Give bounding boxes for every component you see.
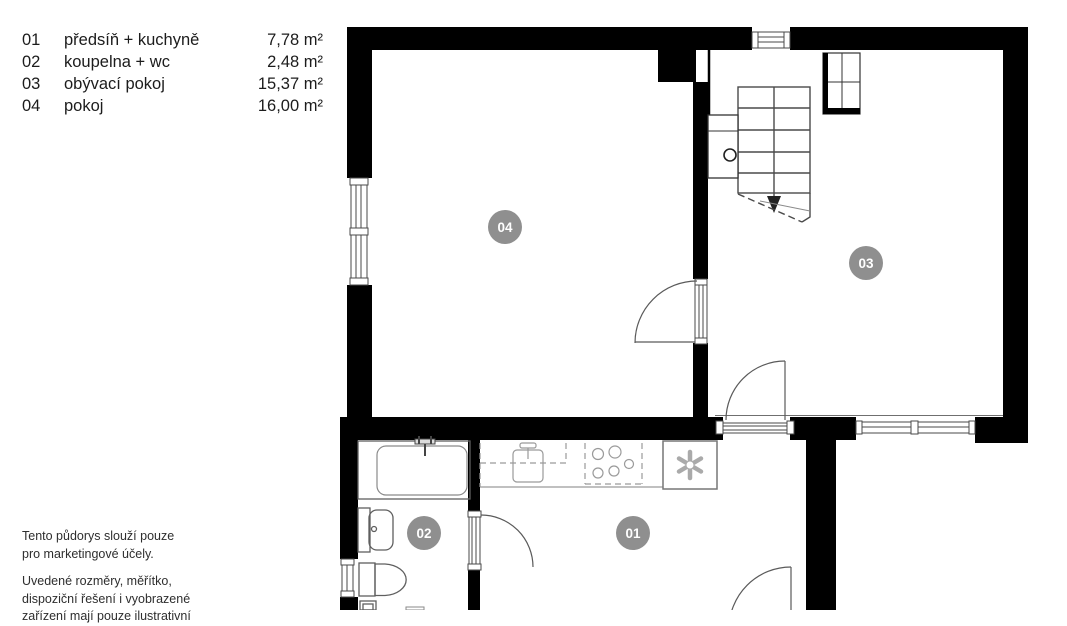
- room-badge-03: 03: [849, 246, 883, 280]
- door-bathroom: [468, 511, 533, 570]
- badge-number: 03: [858, 256, 874, 271]
- disclaimer-line: zařízení mají pouze ilustrativní: [22, 609, 191, 623]
- badge-number: 01: [625, 526, 641, 541]
- room-badge-02: 02: [407, 516, 441, 550]
- door-swing-arc: [729, 567, 791, 610]
- water-heater: [708, 115, 738, 178]
- washbasin: [358, 508, 393, 552]
- window-room04-left: [350, 178, 368, 285]
- door-swing-arc: [481, 515, 533, 567]
- door-swing-arc: [635, 281, 697, 343]
- door-room03: [716, 361, 794, 434]
- badge-number: 02: [416, 526, 431, 541]
- window-top: [752, 32, 790, 48]
- bathtub: [358, 436, 470, 499]
- toilet: [359, 563, 406, 596]
- stove: [593, 446, 634, 478]
- door-swing-arc: [726, 361, 785, 420]
- door-room04: [635, 279, 707, 344]
- kitchen-sink: [513, 443, 543, 482]
- walls: [340, 27, 1028, 610]
- shaft-grid: [823, 53, 860, 114]
- window-bottom-left: [341, 559, 354, 597]
- kitchen-counter: [480, 441, 717, 489]
- floor-plan: 01 02 03 04: [0, 0, 1067, 610]
- refrigerator: [663, 441, 717, 489]
- room-badge-01: 01: [616, 516, 650, 550]
- door-entrance: [729, 567, 791, 610]
- badge-number: 04: [497, 220, 513, 235]
- window-room03-bottom: [856, 421, 975, 434]
- room-badge-04: 04: [488, 210, 522, 244]
- washing-machine: [360, 601, 424, 610]
